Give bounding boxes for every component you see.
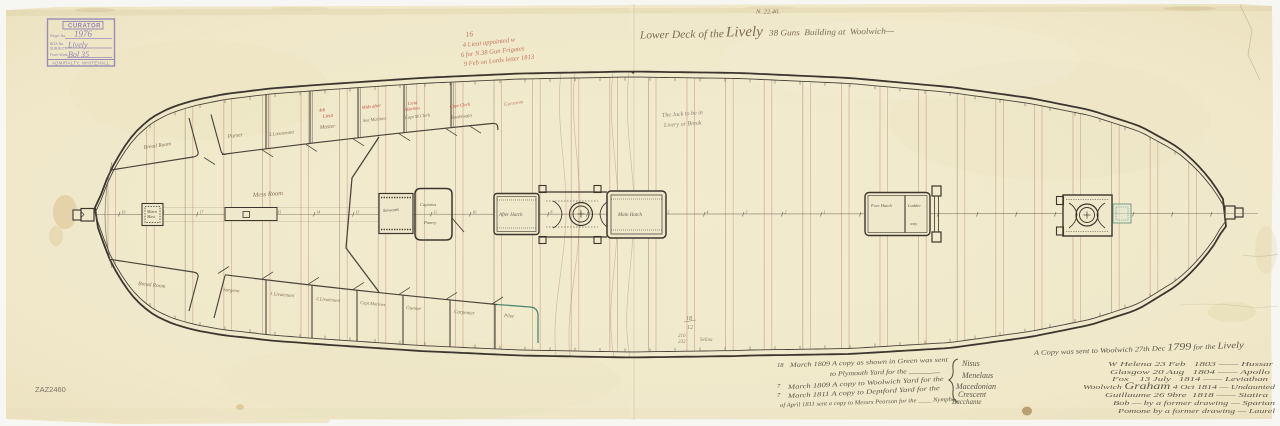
svg-text:Bacchante: Bacchante <box>952 398 982 406</box>
svg-text:2: 2 <box>785 211 787 215</box>
svg-text:3: 3 <box>746 211 748 215</box>
svg-text:15: 15 <box>278 211 282 215</box>
svg-text:Glasgow 20 Aug 1804 —— Apoll: Glasgow 20 Aug 1804 —— Apollo <box>1110 369 1271 376</box>
svg-text:10: 10 <box>473 211 477 215</box>
svg-text:Main Hatch: Main Hatch <box>617 213 643 218</box>
svg-text:N. 22.40.: N. 22.40. <box>755 9 780 16</box>
svg-text:Mast: Mast <box>146 214 156 219</box>
svg-text:18: 18 <box>777 362 784 369</box>
svg-text:4th: 4th <box>319 108 327 114</box>
svg-text:way: way <box>910 221 917 226</box>
svg-text:1976: 1976 <box>74 29 93 39</box>
svg-text:12: 12 <box>687 325 693 331</box>
svg-text:Pantry: Pantry <box>423 220 436 225</box>
svg-text:Nisus: Nisus <box>961 359 980 368</box>
svg-text:8: 8 <box>551 211 553 215</box>
svg-text:ADMIRALTY, WHITEHALL: ADMIRALTY, WHITEHALL <box>52 61 110 66</box>
svg-text:W Helena 23 Feb 1803 —— Huss: W Helena 23 Feb 1803 —— Hussar <box>1108 361 1274 368</box>
svg-text:Lower Deck of the: Lower Deck of the <box>639 28 724 41</box>
svg-text:SUBJECT: SUBJECT <box>50 47 67 51</box>
svg-text:216: 216 <box>678 334 686 339</box>
svg-text:Fore Hatch: Fore Hatch <box>870 203 892 208</box>
svg-text:19: 19 <box>122 211 126 215</box>
svg-text:232: 232 <box>678 340 686 345</box>
svg-text:Pomone by a former drawing — L: Pomone by a former drawing — Laurel <box>1116 408 1275 415</box>
svg-text:Regd. No.: Regd. No. <box>50 34 66 38</box>
svg-text:BOX No.: BOX No. <box>50 42 64 46</box>
svg-text:After Hatch: After Hatch <box>498 213 523 218</box>
svg-text:Lively: Lively <box>67 41 88 50</box>
svg-text:Selina: Selina <box>700 338 713 343</box>
svg-text:4: 4 <box>707 211 709 215</box>
svg-text:16: 16 <box>465 29 474 39</box>
svg-text:5: 5 <box>668 211 670 215</box>
svg-text:Menelaus: Menelaus <box>961 371 993 380</box>
svg-text:Captains: Captains <box>420 202 437 207</box>
svg-text:Lively: Lively <box>725 24 764 41</box>
svg-text:13: 13 <box>356 211 360 215</box>
svg-text:Bob — by a former drawing — Sp: Bob — by a former drawing — Spartan <box>1113 400 1275 407</box>
svg-text:1: 1 <box>824 211 826 215</box>
svg-text:From Work: From Work <box>50 53 68 57</box>
svg-text:11: 11 <box>434 211 438 215</box>
svg-text:Ladder: Ladder <box>907 203 921 208</box>
svg-text:Bol 35: Bol 35 <box>68 50 89 59</box>
svg-text:Guillaume 26 9bre 1818 —— Sta: Guillaume 26 9bre 1818 —— Statira <box>1105 392 1268 399</box>
svg-text:ZAZ2460: ZAZ2460 <box>35 385 66 394</box>
svg-text:14: 14 <box>317 211 321 215</box>
svg-text:Pilot: Pilot <box>503 314 515 320</box>
